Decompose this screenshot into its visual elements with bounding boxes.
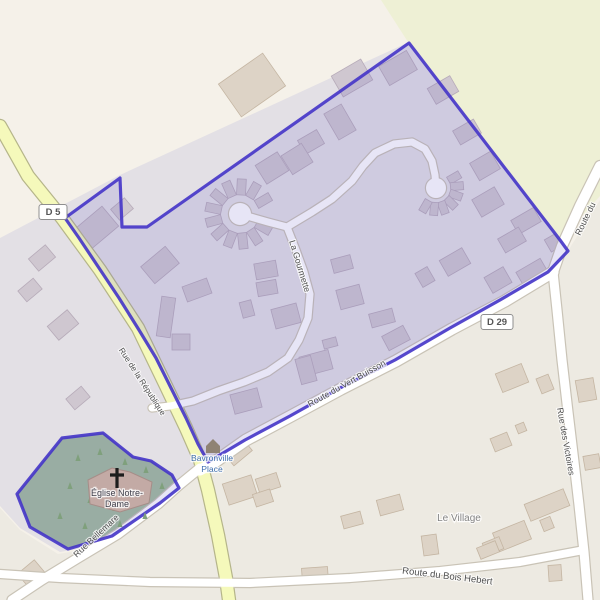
road-ref-badge-d29: D 29	[481, 315, 513, 330]
road-ref-badge-d5: D 5	[39, 205, 67, 220]
road-ref-badge-d29-text: D 29	[487, 317, 507, 328]
building	[583, 454, 600, 471]
map-svg: D 5D 29Rue de la RépubliqueLa GourmetteR…	[0, 0, 600, 600]
label-le-village: Le Village	[437, 513, 481, 524]
road-ref-badge-d5-text: D 5	[46, 207, 62, 218]
label-le-village-line: Le Village	[437, 513, 481, 524]
label-bavronville-place-line: Bavronville	[191, 453, 233, 463]
label-eglise-notre-dame-line: Église Notre-	[91, 488, 143, 498]
label-bavronville-place-line: Place	[201, 464, 223, 474]
building	[421, 534, 439, 556]
building	[548, 565, 562, 582]
map-canvas[interactable]: D 5D 29Rue de la RépubliqueLa GourmetteR…	[0, 0, 600, 600]
label-eglise-notre-dame-line: Dame	[105, 499, 129, 509]
building	[575, 378, 597, 403]
